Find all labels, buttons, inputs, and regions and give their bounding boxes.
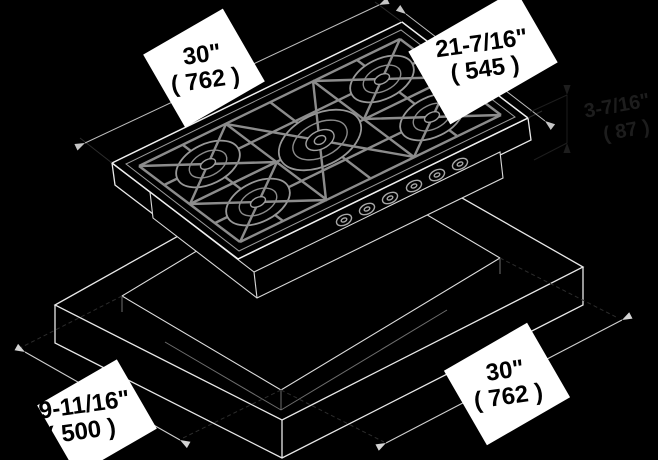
body-height-text: 3-7/16" ( 87 ) (582, 90, 656, 149)
diagram-canvas: 3-7/16" ( 87 ) 30" ( 762 ) 21-7/16" ( 54… (0, 0, 658, 460)
arrowhead (375, 440, 387, 451)
arrowhead (543, 118, 555, 130)
body-height-metric: ( 87 ) (601, 116, 651, 146)
arrowhead (377, 0, 389, 8)
leader-lines (530, 95, 567, 160)
arrowhead (563, 85, 570, 95)
arrowhead (396, 5, 408, 17)
arrowhead (620, 312, 632, 323)
arrowhead (178, 437, 190, 448)
arrowhead (15, 344, 27, 355)
